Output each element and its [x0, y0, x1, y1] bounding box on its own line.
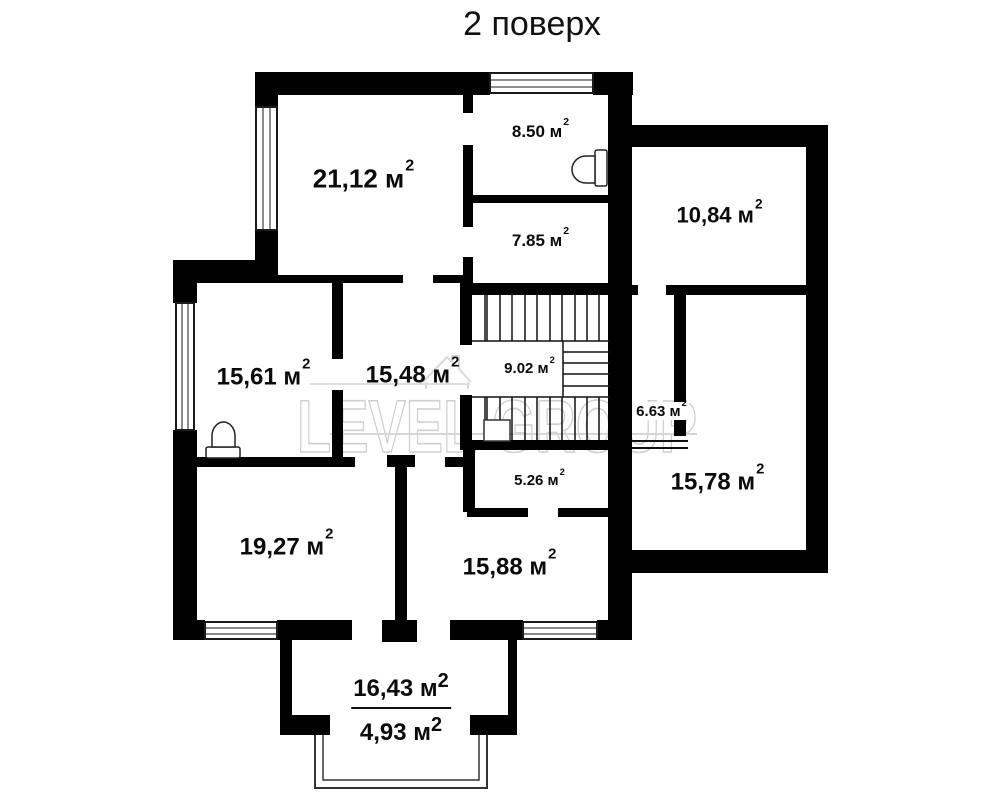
window-bottom-right — [523, 622, 597, 639]
window-top — [490, 73, 593, 93]
room-label-9-02: 9.02 м2 — [504, 360, 554, 376]
door-threshold — [632, 441, 688, 448]
door-leaf — [484, 420, 510, 441]
room-label-15-78: 15,78 м2 — [671, 470, 764, 495]
room-label-10-84: 10,84 м2 — [676, 203, 761, 226]
room-label-15-88: 15,88 м2 — [463, 555, 556, 580]
room-label-19-27: 19,27 м2 — [240, 535, 333, 560]
room-label-5-26: 5.26 м2 — [514, 472, 564, 488]
room-label-21-12: 21,12 м2 — [313, 165, 414, 192]
window-bottom-left — [205, 622, 277, 639]
window-left-lower — [176, 303, 194, 430]
balcony-area: 4,93 м2 — [351, 709, 451, 745]
toilet-icon — [206, 422, 240, 458]
floor-plan-graphic — [0, 0, 1000, 803]
page-title: 2 поверх — [463, 5, 601, 44]
window-left-upper — [256, 107, 277, 230]
room-label-7-85: 7.85 м2 — [512, 231, 568, 249]
room-label-8-50: 8.50 м2 — [512, 122, 568, 140]
floor-plan-page: 2 поверх LEVEL GROUP — [0, 0, 1000, 803]
terrace-area: 16,43 м2 — [351, 671, 451, 709]
room-label-15-61: 15,61 м2 — [217, 365, 310, 390]
room-label-6-63: 6.63 м2 — [633, 402, 689, 420]
balcony-area-label: 16,43 м2 4,93 м2 — [351, 671, 451, 745]
toilet-icon — [572, 150, 607, 186]
room-label-15-48: 15,48 м2 — [366, 363, 459, 388]
